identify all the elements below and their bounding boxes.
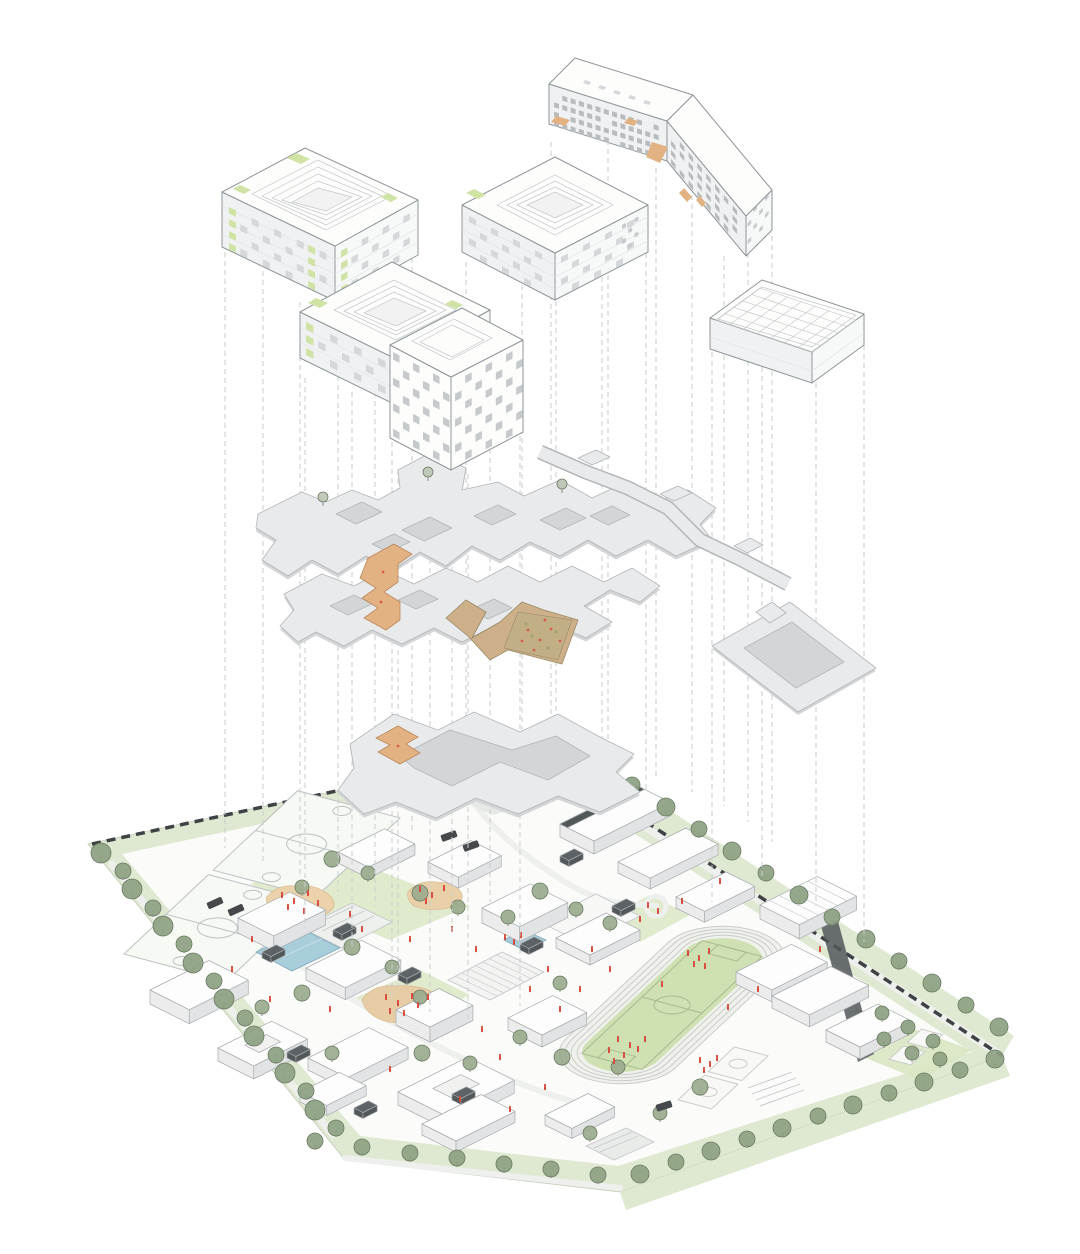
sports-hall-roof	[710, 280, 864, 383]
exploded-axonometric-diagram	[0, 0, 1080, 1254]
site-plan	[88, 746, 1014, 1210]
diagram-canvas	[0, 0, 1080, 1254]
canopy-ring-east	[712, 602, 876, 715]
exploded-buildings	[222, 58, 864, 470]
courtyard-building-center	[462, 157, 648, 300]
